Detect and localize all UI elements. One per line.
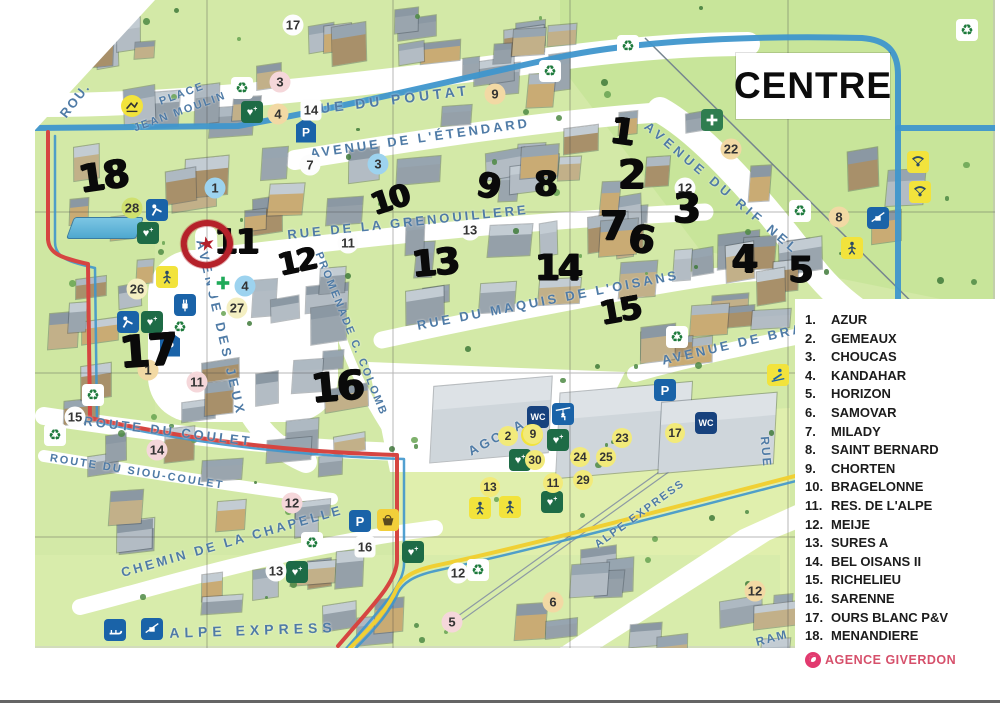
handwritten-number: 6	[625, 215, 657, 263]
legend-item-name: SARENNE	[831, 590, 895, 609]
legend-item: 18.MENANDIERE	[805, 627, 997, 646]
legend-item-name: OURS BLANC P&V	[831, 609, 948, 628]
legend-item-number: 13.	[805, 534, 831, 553]
marker-star-icon: ★	[197, 233, 218, 255]
legend-item: 11.RES. DE L'ALPE	[805, 497, 997, 516]
legend-item-name: HORIZON	[831, 385, 891, 404]
legend-item-number: 14.	[805, 553, 831, 572]
handwritten-number: 14	[535, 248, 581, 289]
legend-item-number: 2.	[805, 330, 831, 349]
legend-item-name: BRAGELONNE	[831, 478, 923, 497]
legend-item-name: AZUR	[831, 311, 867, 330]
resort-map: ROU.RUE DU POUTATPLACEJEAN MOULINAVENUE …	[0, 0, 1000, 707]
legend-item: 1.AZUR	[805, 311, 997, 330]
legend-item-name: GEMEAUX	[831, 330, 897, 349]
handwritten-number: 18	[76, 151, 131, 201]
legend-item: 7.MILADY	[805, 423, 997, 442]
legend-item-name: SURES A	[831, 534, 888, 553]
legend-item-name: SAINT BERNARD	[831, 441, 939, 460]
handwritten-number: 7	[600, 203, 626, 249]
scan-artifact-line	[0, 700, 1000, 703]
legend-item: 2.GEMEAUX	[805, 330, 997, 349]
handwritten-number: 17	[118, 324, 179, 379]
legend-item-number: 18.	[805, 627, 831, 646]
legend-item: 4.KANDAHAR	[805, 367, 997, 386]
legend-item: 9.CHORTEN	[805, 460, 997, 479]
legend-item: 3.CHOUCAS	[805, 348, 997, 367]
handwritten-number: 9	[473, 164, 503, 208]
handwritten-number: 4	[732, 237, 756, 281]
legend-item-number: 16.	[805, 590, 831, 609]
legend-item-number: 3.	[805, 348, 831, 367]
handwritten-number: 16	[309, 362, 364, 412]
legend-item-number: 5.	[805, 385, 831, 404]
legend-item-number: 7.	[805, 423, 831, 442]
agency-credit: AGENCE GIVERDON	[805, 652, 997, 668]
map-title: CENTRE	[734, 65, 892, 107]
legend-item-number: 9.	[805, 460, 831, 479]
legend-item: 16.SARENNE	[805, 590, 997, 609]
legend-item-number: 1.	[805, 311, 831, 330]
legend-item-name: CHOUCAS	[831, 348, 897, 367]
legend-item: 5.HORIZON	[805, 385, 997, 404]
handwritten-number: 10	[367, 178, 414, 223]
legend-item-number: 10.	[805, 478, 831, 497]
map-title-box: CENTRE	[736, 53, 890, 119]
legend-item: 17.OURS BLANC P&V	[805, 609, 997, 628]
legend-item-number: 17.	[805, 609, 831, 628]
page-margin-left	[0, 0, 35, 707]
agency-logo-icon	[805, 652, 821, 668]
legend-item-name: MILADY	[831, 423, 881, 442]
legend-item: 12.MEIJE	[805, 516, 997, 535]
handwritten-number: 13	[410, 241, 460, 286]
legend-item-name: KANDAHAR	[831, 367, 906, 386]
legend-item-number: 4.	[805, 367, 831, 386]
legend-item-name: RES. DE L'ALPE	[831, 497, 932, 516]
legend-item: 14.BEL OISANS II	[805, 553, 997, 572]
scanned-map-page: ROU.RUE DU POUTATPLACEJEAN MOULINAVENUE …	[0, 0, 1000, 707]
legend-item-number: 11.	[805, 497, 831, 516]
handwritten-number: 3	[673, 186, 699, 232]
legend-item-number: 12.	[805, 516, 831, 535]
legend-item-number: 15.	[805, 571, 831, 590]
handwritten-number: 8	[534, 164, 556, 204]
legend-item: 15.RICHELIEU	[805, 571, 997, 590]
legend-item-number: 8.	[805, 441, 831, 460]
legend-item-name: SAMOVAR	[831, 404, 896, 423]
legend-item: 10.BRAGELONNE	[805, 478, 997, 497]
legend-item-name: MEIJE	[831, 516, 870, 535]
handwritten-number: 1	[608, 110, 637, 154]
legend-item-number: 6.	[805, 404, 831, 423]
legend-panel: 1.AZUR2.GEMEAUX3.CHOUCAS4.KANDAHAR5.HORI…	[795, 299, 997, 671]
legend-item-name: RICHELIEU	[831, 571, 901, 590]
handwritten-number: 2	[618, 152, 644, 198]
legend-item-name: MENANDIERE	[831, 627, 918, 646]
legend-list: 1.AZUR2.GEMEAUX3.CHOUCAS4.KANDAHAR5.HORI…	[805, 311, 997, 646]
handwritten-number: 15	[597, 288, 644, 332]
legend-item-name: BEL OISANS II	[831, 553, 921, 572]
legend-item: 6.SAMOVAR	[805, 404, 997, 423]
legend-item: 13.SURES A	[805, 534, 997, 553]
handwritten-number: 12	[275, 241, 319, 283]
agency-name: AGENCE GIVERDON	[825, 653, 956, 667]
legend-item: 8.SAINT BERNARD	[805, 441, 997, 460]
legend-item-name: CHORTEN	[831, 460, 895, 479]
handwritten-number: 5	[788, 250, 811, 291]
